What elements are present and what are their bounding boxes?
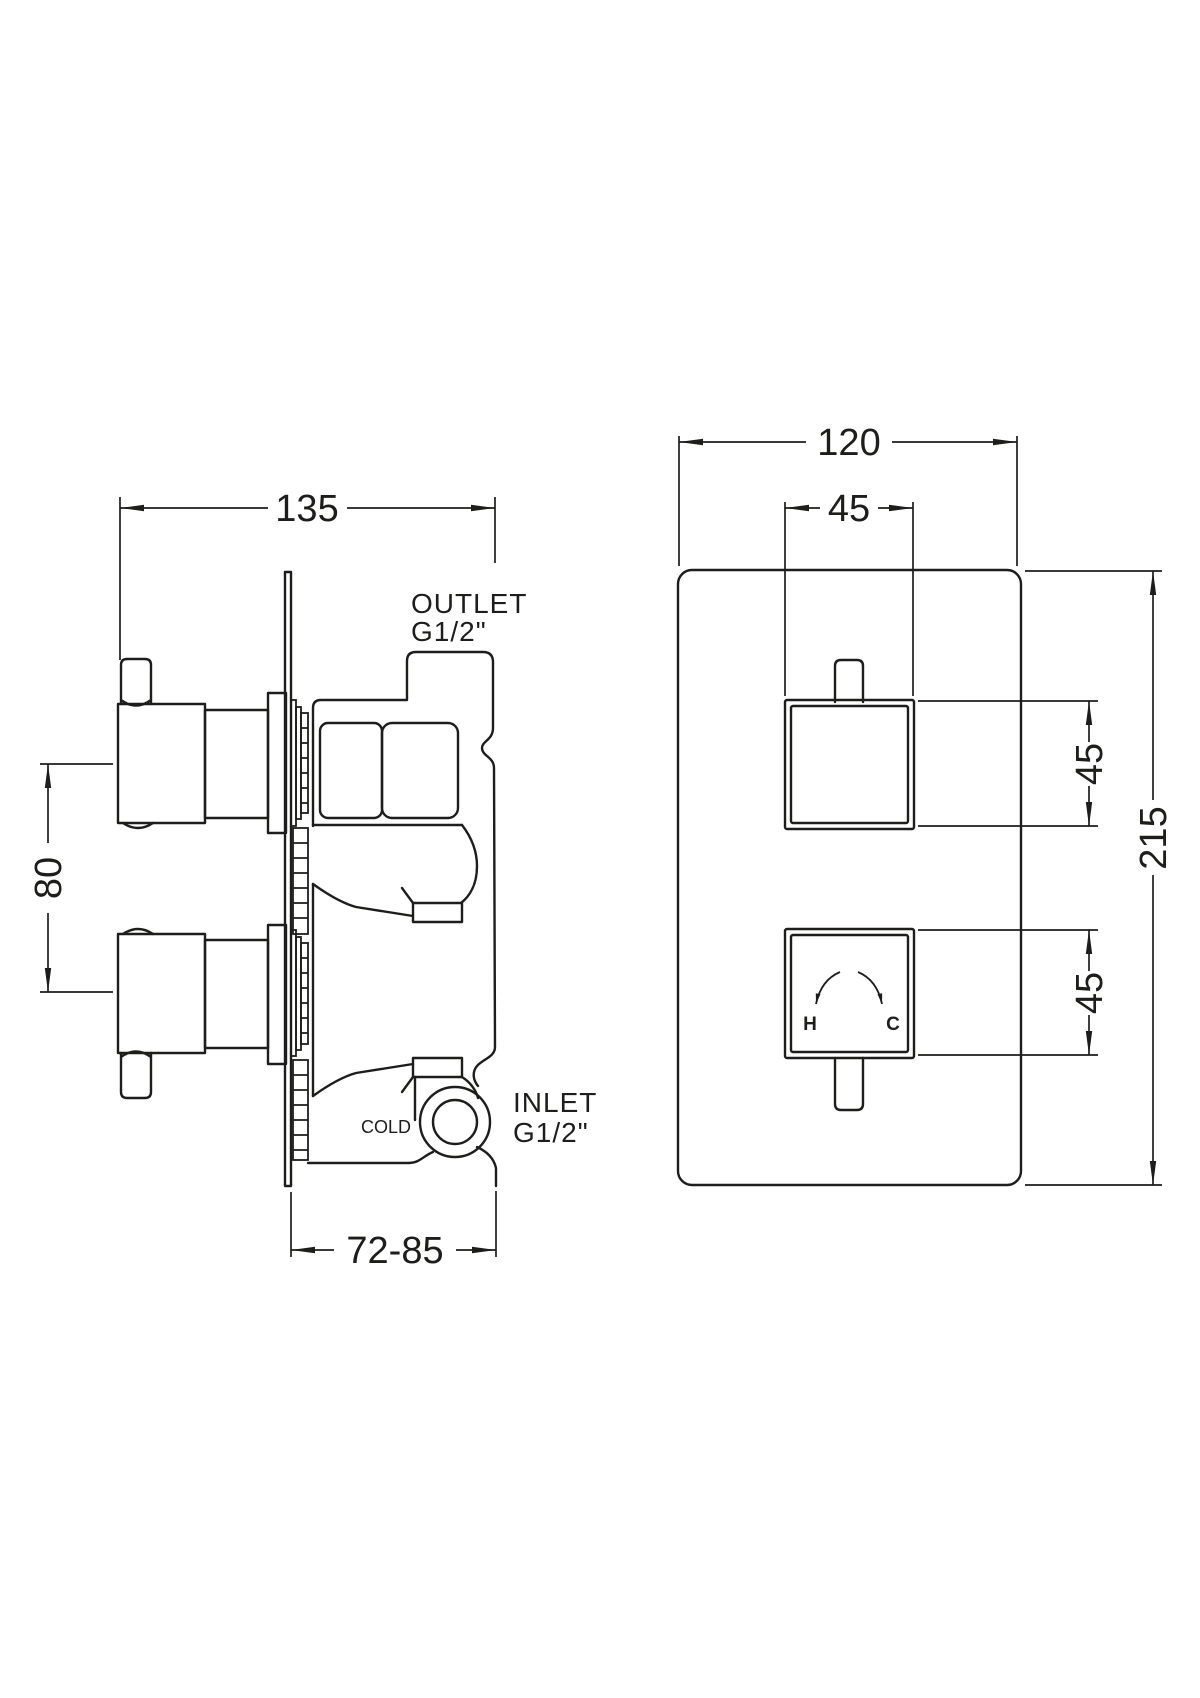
valve-body-side (308, 652, 496, 1186)
hot-label: H (803, 1014, 817, 1035)
threaded-sections (291, 700, 308, 1160)
top-handle-side (118, 659, 286, 833)
dim-text-45-upper: 45 (1069, 743, 1111, 785)
bottom-handle-stem (205, 940, 268, 1048)
front-view: H C 120 45 45 (678, 422, 1175, 1185)
bottom-handle-body (118, 934, 205, 1053)
upper-knob-outer (785, 700, 914, 829)
lower-knob-outer (785, 929, 914, 1058)
face-plate (678, 570, 1021, 1185)
hot-port-step-top (413, 903, 462, 922)
valve-technical-drawing: OUTLET G1/2" INLET G1/2" COLD 135 80 72 (0, 0, 1200, 1698)
bottom-handle-side (118, 925, 286, 1098)
outlet-label: OUTLET (411, 588, 527, 619)
valve-body-outline (313, 652, 495, 1086)
cold-label: COLD (361, 1117, 411, 1137)
bottom-handle-lever-tab (121, 1052, 151, 1099)
bottom-thread-grooves (293, 1075, 308, 1150)
upper-thread-hatches (301, 728, 308, 803)
upper-knob-stem (835, 660, 863, 702)
dimension-lower-knob-45: 45 (918, 930, 1111, 1055)
inlet-boss-outer (420, 1087, 490, 1157)
inlet-label: INLET (513, 1087, 597, 1118)
lower-thread-hatches (301, 958, 308, 1033)
body-sphere-arc (461, 825, 477, 903)
top-handle-lever-tab (121, 659, 151, 706)
hot-rotation-arrow-icon (816, 972, 840, 1004)
dim-text-80: 80 (28, 857, 70, 899)
body-bottom-right-edge (477, 1147, 496, 1186)
body-bottom-edge (308, 1152, 433, 1163)
top-handle-body (118, 704, 205, 823)
dimension-upper-knob-45: 45 (918, 701, 1111, 826)
lower-knob: H C (785, 929, 914, 1110)
dimension-knob-width-45: 45 (785, 488, 913, 696)
hot-port-slant-top (402, 888, 413, 903)
side-view: OUTLET G1/2" INLET G1/2" COLD 135 80 72 (28, 488, 597, 1272)
middle-thread-grooves (293, 843, 308, 918)
cartridge-left (320, 723, 382, 818)
top-handle-stem (205, 710, 268, 818)
technical-drawing-page: OUTLET G1/2" INLET G1/2" COLD 135 80 72 (0, 0, 1200, 1698)
upper-knob (785, 660, 914, 829)
cone-top-edge (313, 884, 413, 916)
hot-port-slant-bottom (402, 1077, 413, 1092)
dimension-plate-height-215: 215 (1025, 571, 1175, 1185)
lower-knob-stem (835, 1058, 863, 1110)
dim-text-45-lower: 45 (1069, 972, 1111, 1014)
dim-text-72-85: 72-85 (346, 1230, 443, 1272)
inlet-boss-inner (433, 1100, 477, 1144)
hot-port-step-bottom (413, 1058, 462, 1077)
outlet-size-label: G1/2" (411, 616, 487, 647)
top-handle-escutcheon (268, 693, 286, 833)
cone-bottom-edge (313, 1064, 413, 1096)
bottom-handle-escutcheon (268, 925, 286, 1064)
dim-text-135: 135 (275, 488, 338, 530)
dim-text-215: 215 (1133, 806, 1175, 869)
dimension-depth-72-85: 72-85 (291, 1191, 496, 1272)
wall-plate-side (285, 572, 291, 1186)
cold-rotation-arrow-icon (858, 972, 882, 1004)
cold-label: C (886, 1014, 900, 1035)
dimension-handle-spacing-80: 80 (28, 764, 113, 992)
dim-text-45-width: 45 (828, 488, 870, 530)
upper-knob-inner (791, 706, 908, 823)
cartridge-right (382, 723, 458, 818)
dim-text-120: 120 (817, 422, 880, 464)
inlet-size-label: G1/2" (513, 1117, 589, 1148)
